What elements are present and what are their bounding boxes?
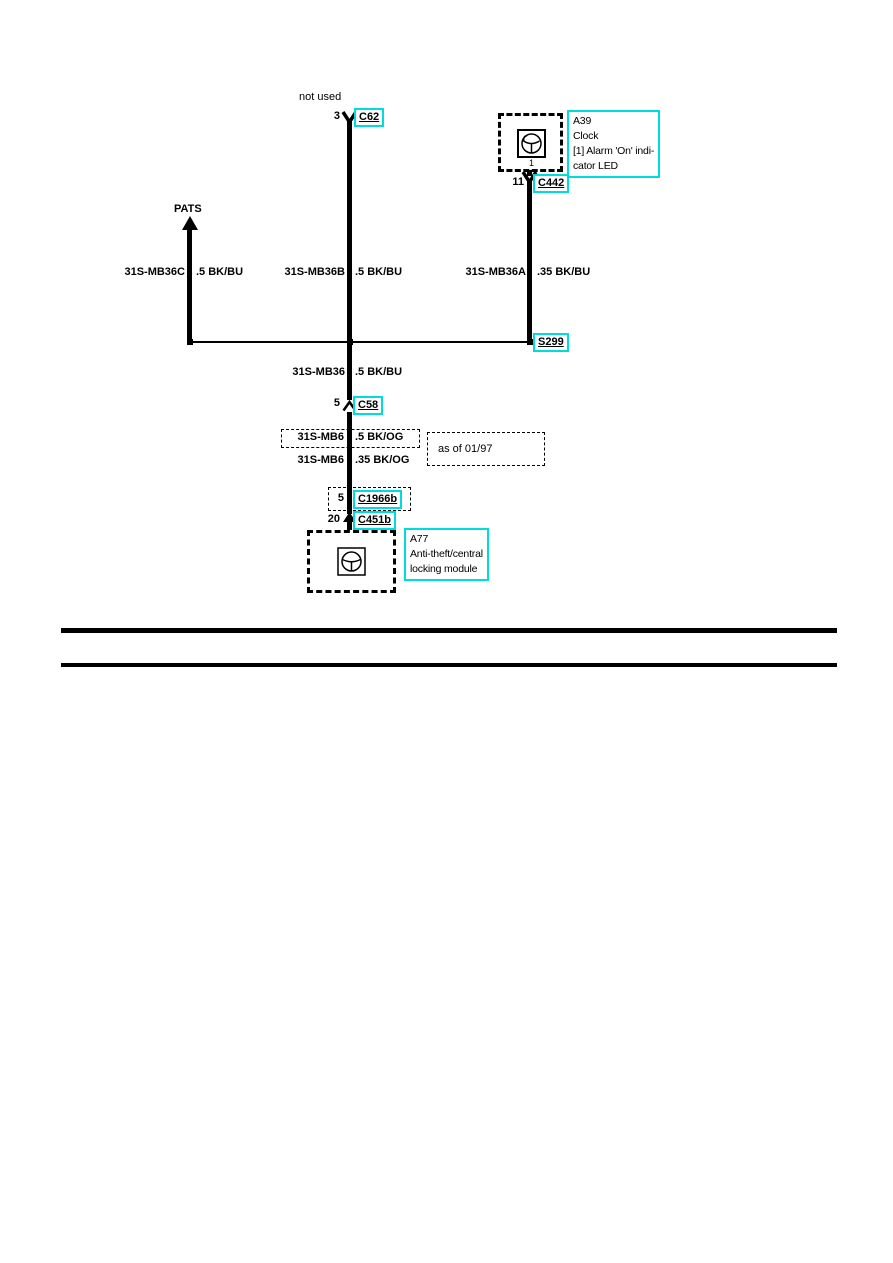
wire-gauge-mb36: .5 BK/BU <box>355 366 402 378</box>
wire-left-pats <box>187 229 192 339</box>
splice-dot-center <box>347 339 353 345</box>
component-pin-label-a39: 1 <box>517 158 546 168</box>
not-used-label: not used <box>299 91 341 103</box>
connector-link-c1966b[interactable]: C1966b <box>353 490 402 509</box>
wire-gauge-mb36c: .5 BK/BU <box>196 266 243 278</box>
wire-name-mb36b: 31S-MB36B <box>265 266 345 278</box>
splice-dot-left <box>187 339 193 345</box>
wire-name-mb36: 31S-MB36 <box>265 366 345 378</box>
wire-gauge-mb6-boxed: .5 BK/OG <box>355 431 403 443</box>
wire-name-mb6-boxed: 31S-MB6 <box>284 431 344 443</box>
pin-number-c451b: 20 <box>320 513 340 525</box>
pats-label: PATS <box>174 203 202 215</box>
as-of-note-box: as of 01/97 <box>427 432 545 466</box>
pin-number-c58: 5 <box>324 397 340 409</box>
component-callout-a39[interactable]: A39 Clock [1] Alarm 'On' indi- cator LED <box>567 110 660 178</box>
connector-link-c442[interactable]: C442 <box>533 174 569 193</box>
wiring-diagram-page: not used 3 C62 1 A39 Clock [1] Alarm 'On… <box>0 0 893 1263</box>
wire-name-mb36a: 31S-MB36A <box>446 266 526 278</box>
wire-gauge-mb6-plain: .35 BK/OG <box>355 454 409 466</box>
component-name1-a77: Anti-theft/central <box>410 547 483 562</box>
module-symbol-icon-a77 <box>337 547 366 576</box>
wire-right-c442 <box>527 188 532 339</box>
component-id-a77: A77 <box>410 532 483 547</box>
separator-rule-bottom <box>61 663 837 667</box>
wire-gauge-mb36a: .35 BK/BU <box>537 266 590 278</box>
splice-bus-line <box>190 341 530 343</box>
indicator-led-icon <box>517 129 546 158</box>
wire-name-mb36c: 31S-MB36C <box>105 266 185 278</box>
component-name2-a77: locking module <box>410 562 483 577</box>
separator-rule-top <box>61 628 837 633</box>
connector-link-c58[interactable]: C58 <box>353 396 383 415</box>
component-name-a39: Clock <box>573 129 654 144</box>
pin-number-c62: 3 <box>322 110 340 122</box>
pin-number-c1966b: 5 <box>330 492 344 504</box>
component-note2-a39: cator LED <box>573 159 654 174</box>
wire-gauge-mb36b: .5 BK/BU <box>355 266 402 278</box>
component-callout-a77[interactable]: A77 Anti-theft/central locking module <box>404 528 489 581</box>
pats-arrowhead-icon <box>182 216 198 230</box>
as-of-note-text: as of 01/97 <box>438 443 492 455</box>
wire-name-mb6-plain: 31S-MB6 <box>284 454 344 466</box>
component-note1-a39: [1] Alarm 'On' indi- <box>573 144 654 159</box>
component-id-a39: A39 <box>573 114 654 129</box>
splice-link-s299[interactable]: S299 <box>533 333 569 352</box>
connector-link-c451b[interactable]: C451b <box>353 511 396 530</box>
connector-link-c62[interactable]: C62 <box>354 108 384 127</box>
wire-center-upper <box>347 127 352 400</box>
